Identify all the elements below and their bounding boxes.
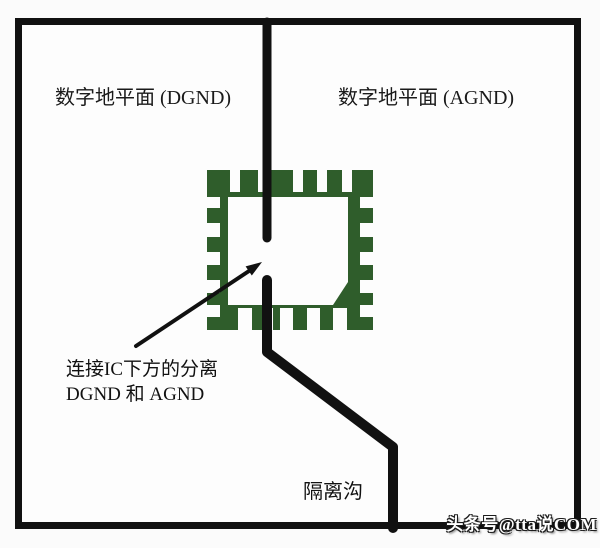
- pad-notch: [360, 305, 373, 317]
- watermark-text: 头条号@tta说COM: [433, 510, 597, 535]
- pad-notch: [280, 308, 293, 330]
- split-annotation-line1: 连接IC下方的分离: [66, 357, 218, 382]
- pad-notch: [238, 308, 252, 330]
- pad-notch: [333, 308, 347, 330]
- pad-notch: [360, 197, 373, 208]
- chip-inner-area: [228, 197, 348, 305]
- pad-notch: [360, 280, 373, 293]
- pad-notch: [230, 170, 240, 192]
- pad-notch: [258, 170, 268, 192]
- pad-notch: [342, 170, 352, 192]
- pad-notch: [207, 280, 220, 293]
- pad-notch: [207, 305, 220, 317]
- pad-notch: [207, 197, 220, 208]
- pad-notch: [307, 308, 320, 330]
- pad-notch: [207, 223, 220, 237]
- ic-footprint: [207, 170, 373, 330]
- pad-notch: [207, 252, 220, 265]
- split-annotation: 连接IC下方的分离 DGND 和 AGND: [66, 357, 218, 407]
- isolation-trench-label: 隔离沟: [303, 475, 363, 504]
- pad-notch: [264, 308, 273, 330]
- pad-notch: [293, 170, 303, 192]
- agnd-plane-label: 数字地平面 (AGND): [316, 81, 536, 110]
- pad-notch: [360, 223, 373, 237]
- pad-notch: [360, 252, 373, 265]
- diagram-canvas: 数字地平面 (DGND) 数字地平面 (AGND): [0, 0, 600, 548]
- split-annotation-line2: DGND 和 AGND: [66, 382, 218, 407]
- pad-notch: [317, 170, 327, 192]
- dgnd-plane-label: 数字地平面 (DGND): [33, 81, 253, 110]
